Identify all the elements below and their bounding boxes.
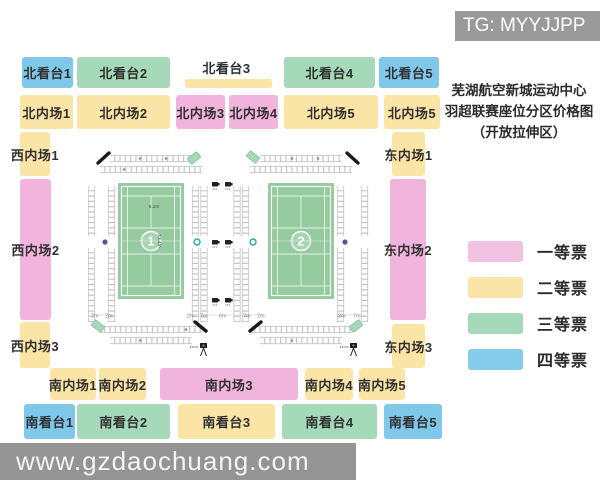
zone-南看台1: 南看台1 bbox=[24, 404, 75, 439]
badminton-court: 16.1m13.4m bbox=[118, 183, 184, 299]
floor-dimension-label: 2m bbox=[105, 314, 113, 320]
legend-item: 四等票 bbox=[468, 348, 588, 370]
camera-icon bbox=[212, 182, 220, 189]
zone-西内场3: 西内场3 bbox=[20, 322, 50, 368]
zone-西内场1: 西内场1 bbox=[20, 132, 50, 176]
platform-block bbox=[246, 151, 260, 164]
title-line-2: 羽超联赛座位分区价格图 bbox=[438, 101, 600, 122]
badminton-court: 2 bbox=[268, 183, 334, 299]
title-line-3: （开放拉伸区） bbox=[438, 122, 600, 143]
official-dot-teal bbox=[194, 239, 200, 245]
map-title: 芜湖航空新城运动中心 羽超联赛座位分区价格图 （开放拉伸区） bbox=[438, 80, 600, 143]
legend-swatch bbox=[468, 313, 523, 334]
zone-北内场3: 北内场3 bbox=[176, 95, 225, 129]
zone-西内场2: 西内场2 bbox=[20, 179, 51, 320]
zone-北看台3: 北看台3 bbox=[178, 55, 275, 79]
zone-北内场5: 北内场5 bbox=[384, 95, 440, 129]
zone-南内场3: 南内场3 bbox=[160, 368, 298, 400]
camera-icons bbox=[212, 182, 233, 305]
court-number: 1 bbox=[148, 235, 155, 249]
corner-mark-icon bbox=[347, 153, 358, 163]
official-dot-purple bbox=[342, 239, 347, 244]
legend-swatch bbox=[468, 349, 523, 370]
title-line-1: 芜湖航空新城运动中心 bbox=[438, 80, 600, 101]
zone-南看台4: 南看台4 bbox=[282, 404, 377, 439]
zone-strip bbox=[185, 79, 272, 88]
zone-南内场4: 南内场4 bbox=[305, 368, 353, 400]
platform-block bbox=[187, 152, 201, 165]
legend-swatch bbox=[468, 241, 523, 262]
zone-南看台2: 南看台2 bbox=[77, 404, 170, 439]
floor-dimension-label: 6m bbox=[219, 314, 227, 320]
floor-dimension-label: 2m bbox=[187, 314, 195, 320]
legend-label: 二等票 bbox=[537, 275, 588, 299]
website-watermark: www.gzdaochuang.com bbox=[0, 443, 356, 480]
seating-price-map: 北看台1北看台2北看台3北看台4北看台5北内场1北内场2北内场3北内场4北内场5… bbox=[0, 0, 600, 480]
zone-北内场2: 北内场2 bbox=[77, 95, 170, 129]
arena-floor-plan: 16.1m13.4m2 7m2m2m7m6m7m2m2m7m bbox=[88, 150, 370, 365]
court-width-label: 6.1m bbox=[149, 204, 160, 210]
floor-dimension-label: 7m bbox=[91, 314, 99, 320]
ticket-legend: 一等票二等票三等票四等票 bbox=[468, 240, 588, 384]
legend-swatch bbox=[468, 277, 523, 298]
floor-dimension-label: 7m bbox=[243, 314, 251, 320]
legend-item: 二等票 bbox=[468, 276, 588, 298]
camera-icon bbox=[212, 298, 220, 305]
legend-item: 一等票 bbox=[468, 240, 588, 262]
zone-北内场1: 北内场1 bbox=[20, 95, 73, 129]
floor-dimension-label: 2m bbox=[338, 314, 346, 320]
court-length-label: 13.4m bbox=[156, 234, 162, 247]
telegram-watermark: TG: MYYJJPP bbox=[455, 11, 600, 41]
court-number: 2 bbox=[298, 235, 305, 249]
legend-label: 三等票 bbox=[537, 311, 588, 335]
zone-北看台4: 北看台4 bbox=[284, 57, 375, 88]
camera-icon bbox=[212, 240, 220, 247]
floor-dimension-label: 7m bbox=[200, 314, 208, 320]
corner-mark-icon bbox=[98, 153, 109, 163]
zone-北看台1: 北看台1 bbox=[22, 57, 73, 88]
zone-北内场5: 北内场5 bbox=[284, 95, 378, 129]
zone-北看台2: 北看台2 bbox=[77, 57, 170, 88]
tripod-camera-icon bbox=[190, 343, 207, 356]
zone-北看台5: 北看台5 bbox=[379, 57, 439, 88]
tripod-camera-icon bbox=[340, 343, 357, 356]
zone-东内场2: 东内场2 bbox=[390, 179, 426, 320]
legend-label: 一等票 bbox=[537, 239, 588, 263]
camera-icon bbox=[225, 240, 233, 247]
legend-label: 四等票 bbox=[537, 347, 588, 371]
floor-dimension-label: 2m bbox=[257, 314, 265, 320]
zone-南内场5: 南内场5 bbox=[359, 368, 405, 400]
floor-dimension-label: 7m bbox=[353, 314, 361, 320]
camera-icon bbox=[225, 182, 233, 189]
zone-北内场4: 北内场4 bbox=[229, 95, 278, 129]
official-dot-purple bbox=[102, 239, 107, 244]
zone-东内场1: 东内场1 bbox=[392, 132, 425, 176]
zone-南看台5: 南看台5 bbox=[384, 404, 442, 439]
official-dot-teal bbox=[250, 239, 256, 245]
zone-南内场1: 南内场1 bbox=[50, 368, 96, 400]
zone-南内场2: 南内场2 bbox=[99, 368, 146, 400]
legend-item: 三等票 bbox=[468, 312, 588, 334]
zone-东内场3: 东内场3 bbox=[392, 324, 425, 368]
zone-南看台3: 南看台3 bbox=[178, 404, 275, 439]
camera-icon bbox=[225, 298, 233, 305]
